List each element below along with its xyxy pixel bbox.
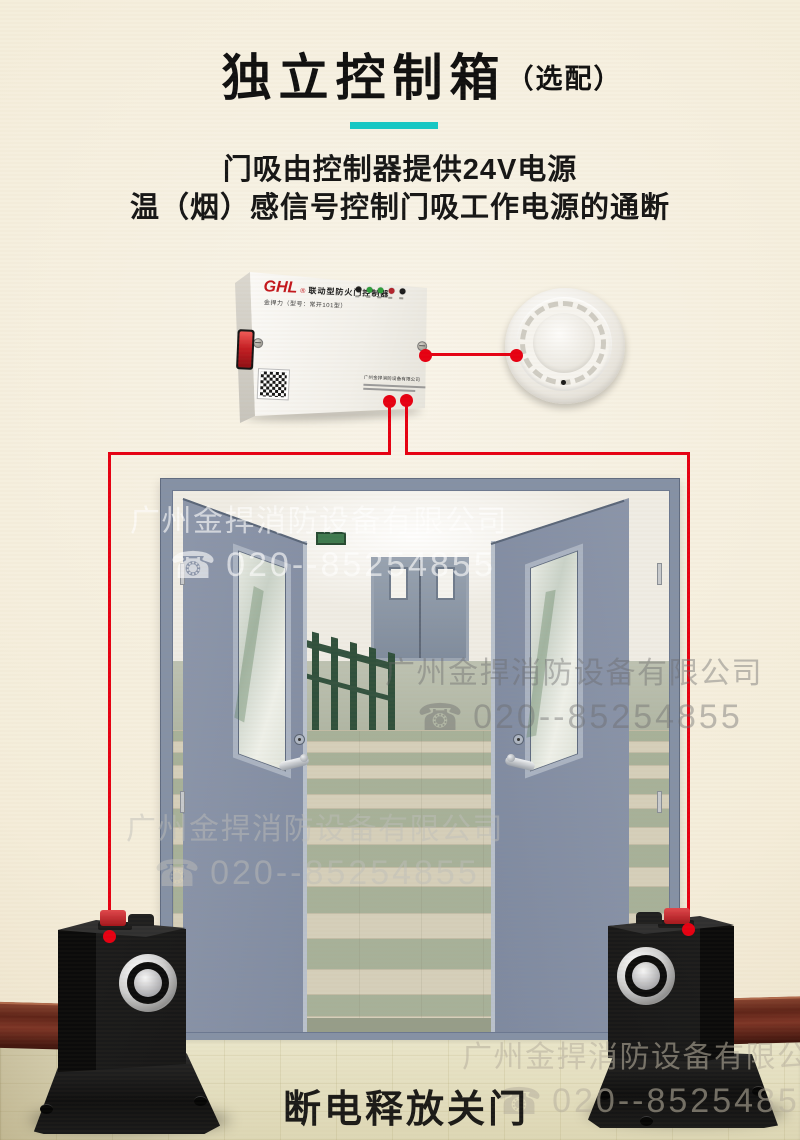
registered-mark: ® (300, 288, 305, 295)
subtitle-line-1: 门吸由控制器提供24V电源 (0, 146, 800, 188)
right-release-button[interactable] (664, 908, 690, 924)
right-door-hinge (657, 563, 662, 585)
wire-detector (427, 353, 519, 356)
right-door-lock (513, 734, 524, 745)
bolt-hole (40, 1104, 53, 1114)
wire-node (510, 349, 523, 362)
title-text: 独立控制箱 (222, 50, 507, 106)
wire-node (400, 394, 413, 407)
left-door-window (233, 543, 291, 778)
status-led (377, 287, 383, 293)
door-photo (160, 478, 680, 1043)
smoke-detector-dome (533, 313, 595, 373)
left-holder-terminal (128, 914, 154, 926)
wire-drop-right (405, 399, 408, 454)
title-suffix: （选配） (507, 64, 623, 94)
bolt-hole (640, 1116, 653, 1126)
status-led (388, 288, 394, 294)
smoke-detector-led (561, 380, 566, 385)
status-led (399, 288, 405, 294)
status-led (366, 287, 372, 293)
left-door-handle-hub (300, 754, 308, 762)
wire-down-left (108, 452, 111, 938)
title-divider (350, 122, 438, 129)
controller-company-line: 广州金捍消防设备有限公司 (364, 375, 426, 384)
brand-logo: GHL (263, 278, 298, 297)
wire-run-left (108, 452, 391, 455)
back-door-left-window (389, 567, 408, 600)
window-reflection (526, 590, 555, 738)
bolt-hole (598, 1090, 611, 1100)
wire-node (103, 930, 116, 943)
wire-down-right (687, 452, 690, 930)
right-holder-terminal (636, 912, 662, 924)
bolt-hole (752, 1086, 765, 1096)
subtitle-line-2: 温（烟）感信号控制门吸工作电源的通断 (0, 184, 800, 226)
back-door-right (421, 560, 466, 658)
smoke-detector (505, 288, 625, 404)
left-door-hinge (180, 563, 185, 585)
screw-icon (253, 338, 263, 348)
exit-sign (316, 532, 346, 545)
wire-node (419, 349, 432, 362)
wire-node (682, 923, 695, 936)
back-door-right-window (436, 567, 455, 600)
right-door-hinge (657, 791, 662, 813)
controller-label-block: 广州金捍消防设备有限公司 (363, 375, 426, 393)
back-double-doors (371, 557, 469, 661)
right-door-window (525, 543, 583, 778)
bolt-hole (194, 1096, 207, 1106)
left-door-edge (303, 541, 307, 1032)
wire-drop-left (388, 400, 391, 454)
right-door-edge (491, 541, 495, 1032)
corridor-interior (172, 490, 670, 1033)
wire-node (383, 395, 396, 408)
left-magnet-core (134, 969, 162, 997)
power-switch[interactable] (236, 329, 255, 370)
wire-run-right (405, 452, 690, 455)
left-release-button[interactable] (100, 910, 126, 926)
left-door-lock (294, 734, 305, 745)
left-door-hinge (180, 791, 185, 813)
back-door-left (374, 560, 419, 658)
status-led (355, 286, 361, 292)
right-door-handle-hub (507, 754, 515, 762)
promo-page: 独立控制箱（选配） 门吸由控制器提供24V电源 温（烟）感信号控制门吸工作电源的… (0, 0, 800, 1140)
qr-code (257, 368, 290, 400)
window-reflection (234, 586, 263, 723)
bottom-caption: 断电释放关门 (283, 1078, 529, 1133)
page-title: 独立控制箱（选配） (22, 38, 800, 110)
right-magnet-core (632, 962, 660, 990)
